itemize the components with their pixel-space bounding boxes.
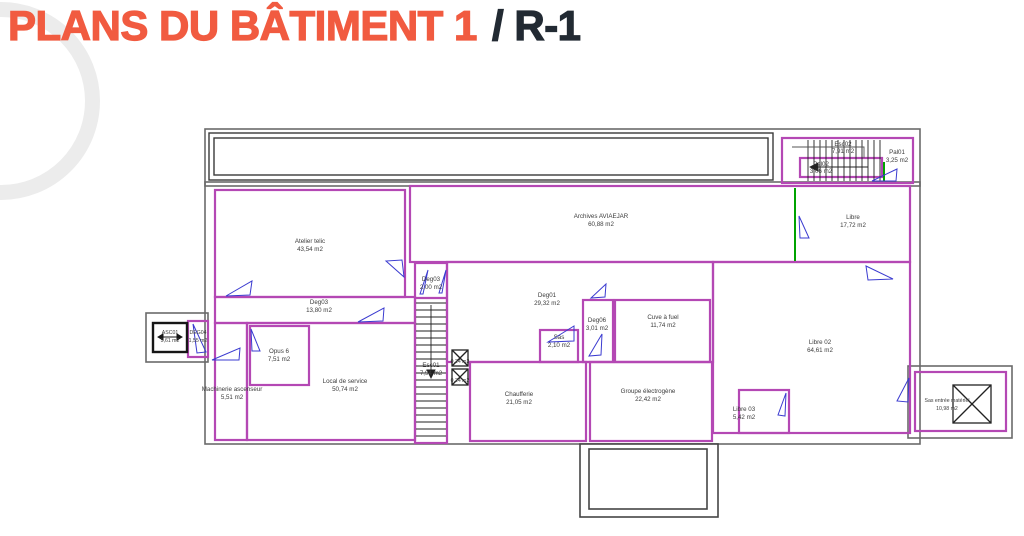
room-label: Opus 6: [269, 348, 290, 355]
room-area: 13,80 m2: [306, 307, 332, 314]
hoist-symbol: [953, 385, 991, 423]
room-walls: [188, 138, 1006, 443]
shaft-area: 0,24 m2: [451, 359, 470, 365]
room-area: 50,74 m2: [332, 386, 358, 393]
room-area: 64,61 m2: [807, 347, 833, 354]
room-label: Libre 02: [809, 339, 832, 346]
room-area: 1,55 m2: [189, 338, 208, 344]
room-area: 2,10 m2: [548, 342, 571, 349]
room-label: Deg01: [538, 292, 557, 299]
room-area: 22,42 m2: [635, 396, 661, 403]
room-label: Esc02: [834, 141, 852, 148]
room-area: 7,94 m2: [420, 370, 443, 377]
shaft-area: 0,24 m2: [451, 378, 470, 384]
room-label: Chaufferie: [505, 391, 534, 398]
room-area: 10,98 m2: [936, 406, 958, 412]
room-label: Deg03: [422, 276, 441, 283]
room-area: 5,61 m2: [161, 338, 180, 344]
room-area: 3,06 m2: [810, 168, 833, 175]
room-label: ASC01: [162, 330, 179, 336]
room-label: Pal02: [813, 161, 829, 168]
room-label: Deg03: [310, 299, 329, 306]
room-area: 11,74 m2: [650, 322, 676, 329]
page: PLANS DU BÂTIMENT 1 / R-1: [0, 0, 1024, 536]
room-label: Deg06: [588, 317, 607, 324]
room-label: Groupe électrogène: [621, 388, 676, 395]
room-label: Atelier telic: [295, 238, 325, 245]
room-label: Esc01: [422, 362, 440, 369]
floor-plan-svg: Atelier telic 43,54 m2 Archives AVIAEJAR…: [0, 0, 1024, 536]
room-area: 60,88 m2: [588, 221, 614, 228]
room-area: 7,51 m2: [268, 356, 291, 363]
room-area: 7,91 m2: [832, 148, 855, 155]
room-area: 3,25 m2: [886, 157, 909, 164]
room-label: Machinerie ascenseur: [202, 386, 263, 393]
room-label: Local de service: [323, 378, 368, 385]
room-area: 21,05 m2: [506, 399, 532, 406]
room-area: 17,72 m2: [840, 222, 866, 229]
room-area: 2,00 m2: [420, 284, 443, 291]
room-area: 43,54 m2: [297, 246, 323, 253]
room-label: Cuve à fuel: [647, 314, 678, 321]
room-label: Sas entrée matériel: [925, 398, 970, 404]
room-label: Sas: [554, 334, 565, 341]
exterior-well: [580, 444, 718, 517]
room-label: DEG04: [189, 330, 206, 336]
room-label: Libre 03: [733, 406, 756, 413]
room-area: 3,01 m2: [586, 325, 609, 332]
room-area: 5,42 m2: [733, 414, 756, 421]
room-label: Pal01: [889, 149, 905, 156]
room-label: Archives AVIAEJAR: [574, 213, 629, 220]
top-corridor: [209, 133, 773, 180]
room-label: Libre: [846, 214, 860, 221]
room-area: 5,51 m2: [221, 394, 244, 401]
room-area: 29,32 m2: [534, 300, 560, 307]
